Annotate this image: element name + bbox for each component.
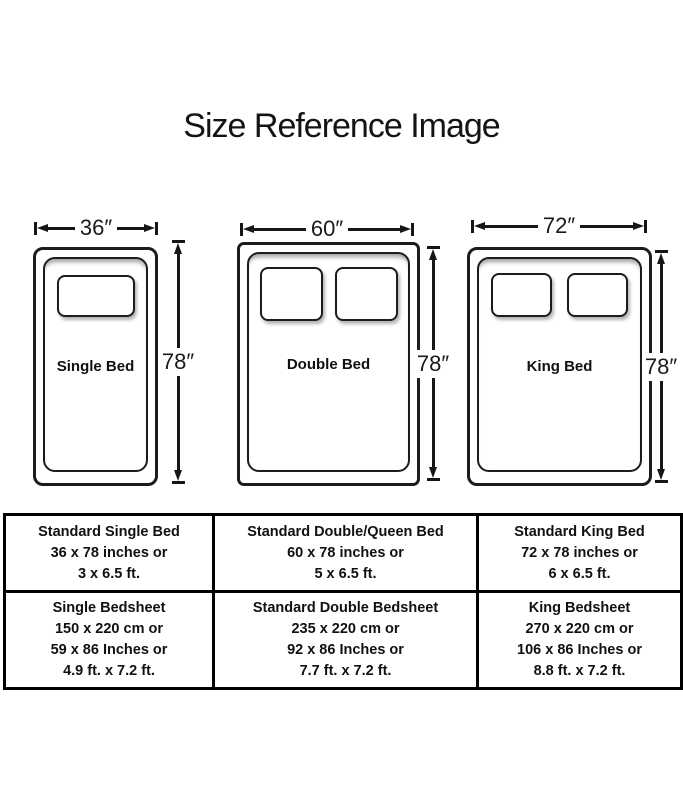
king-bedsheet-cell: King Bedsheet 270 x 220 cm or 106 x 86 I…: [478, 592, 682, 689]
pillow: [491, 273, 552, 317]
double-bed-name: Double Bed: [249, 356, 408, 373]
dimension-end-tick: [172, 481, 185, 484]
single-bedsheet-cell: Single Bedsheet 150 x 220 cm or 59 x 86 …: [5, 592, 214, 689]
cell-line: 8.8 ft. x 7.2 ft.: [481, 661, 678, 682]
cell-line: Standard Double Bedsheet: [217, 598, 474, 619]
dimension-line: [348, 228, 400, 231]
pillow-row: [479, 273, 640, 317]
king-bed-width-arrow: 72″: [471, 214, 647, 238]
cell-line: 92 x 86 Inches or: [217, 640, 474, 661]
bed-size-row: Standard Single Bed 36 x 78 inches or 3 …: [5, 515, 682, 592]
cell-line: 270 x 220 cm or: [481, 619, 678, 640]
cell-line: Standard Single Bed: [8, 522, 210, 543]
dimension-line: [177, 254, 180, 348]
page-title: Size Reference Image: [0, 106, 683, 146]
arrowhead-up-icon: [657, 253, 665, 264]
cell-line: 5 x 6.5 ft.: [217, 564, 474, 585]
pillow: [335, 267, 398, 321]
size-reference-page: Size Reference Image 36″ Single Bed 78″: [0, 0, 683, 800]
cell-line: 59 x 86 Inches or: [8, 640, 210, 661]
cell-line: 3 x 6.5 ft.: [8, 564, 210, 585]
arrowhead-up-icon: [174, 243, 182, 254]
dimension-line: [177, 376, 180, 470]
king-bed-height-arrow: 78″: [641, 250, 681, 483]
single-bed-width-label: 36″: [75, 217, 117, 239]
cell-line: 150 x 220 cm or: [8, 619, 210, 640]
double-bed-width-label: 60″: [306, 218, 348, 240]
pillow: [57, 275, 135, 317]
arrowhead-down-icon: [174, 470, 182, 481]
king-bed-mattress: King Bed: [477, 257, 642, 472]
dimension-end-tick: [644, 220, 647, 233]
single-bed-height-arrow: 78″: [158, 240, 198, 484]
pillow-row: [45, 275, 146, 317]
single-bed-outline: Single Bed: [33, 247, 158, 486]
double-bedsheet-cell: Standard Double Bedsheet 235 x 220 cm or…: [214, 592, 478, 689]
dimension-end-tick: [155, 222, 158, 235]
dimension-line: [117, 227, 144, 230]
pillow-row: [249, 267, 408, 321]
arrowhead-down-icon: [429, 467, 437, 478]
dimension-line: [485, 225, 538, 228]
size-table: Standard Single Bed 36 x 78 inches or 3 …: [3, 513, 683, 690]
dimension-line: [432, 260, 435, 350]
dimension-end-tick: [411, 223, 414, 236]
double-bed-height-label: 78″: [417, 350, 449, 378]
double-bed-width-arrow: 60″: [240, 217, 414, 241]
dimension-line: [48, 227, 75, 230]
dimension-line: [660, 381, 663, 470]
single-bed-mattress: Single Bed: [43, 257, 148, 472]
arrowhead-left-icon: [37, 224, 48, 232]
dimension-line: [254, 228, 306, 231]
cell-line: Single Bedsheet: [8, 598, 210, 619]
dimension-end-tick: [427, 478, 440, 481]
double-bed-outline: Double Bed: [237, 242, 420, 486]
cell-line: 72 x 78 inches or: [481, 543, 678, 564]
king-bed-width-label: 72″: [538, 215, 580, 237]
cell-line: 60 x 78 inches or: [217, 543, 474, 564]
king-bed-height-label: 78″: [645, 353, 677, 381]
pillow: [567, 273, 628, 317]
standard-single-bed-cell: Standard Single Bed 36 x 78 inches or 3 …: [5, 515, 214, 592]
cell-line: 6 x 6.5 ft.: [481, 564, 678, 585]
cell-line: 4.9 ft. x 7.2 ft.: [8, 661, 210, 682]
standard-double-bed-cell: Standard Double/Queen Bed 60 x 78 inches…: [214, 515, 478, 592]
arrowhead-left-icon: [243, 225, 254, 233]
cell-line: Standard Double/Queen Bed: [217, 522, 474, 543]
king-bed-name: King Bed: [479, 358, 640, 375]
pillow: [260, 267, 323, 321]
dimension-line: [580, 225, 633, 228]
double-bed-height-arrow: 78″: [413, 246, 453, 481]
cell-line: 36 x 78 inches or: [8, 543, 210, 564]
standard-king-bed-cell: Standard King Bed 72 x 78 inches or 6 x …: [478, 515, 682, 592]
arrowhead-left-icon: [474, 222, 485, 230]
dimension-end-tick: [655, 480, 668, 483]
cell-line: King Bedsheet: [481, 598, 678, 619]
single-bed-name: Single Bed: [45, 358, 146, 375]
dimension-line: [660, 264, 663, 353]
king-bed-outline: King Bed: [467, 247, 652, 486]
single-bed-height-label: 78″: [162, 348, 194, 376]
double-bed-mattress: Double Bed: [247, 252, 410, 472]
cell-line: 106 x 86 Inches or: [481, 640, 678, 661]
cell-line: Standard King Bed: [481, 522, 678, 543]
arrowhead-down-icon: [657, 469, 665, 480]
cell-line: 235 x 220 cm or: [217, 619, 474, 640]
arrowhead-up-icon: [429, 249, 437, 260]
arrowhead-right-icon: [400, 225, 411, 233]
cell-line: 7.7 ft. x 7.2 ft.: [217, 661, 474, 682]
dimension-line: [432, 378, 435, 468]
arrowhead-right-icon: [144, 224, 155, 232]
arrowhead-right-icon: [633, 222, 644, 230]
single-bed-width-arrow: 36″: [34, 216, 158, 240]
bedsheet-size-row: Single Bedsheet 150 x 220 cm or 59 x 86 …: [5, 592, 682, 689]
